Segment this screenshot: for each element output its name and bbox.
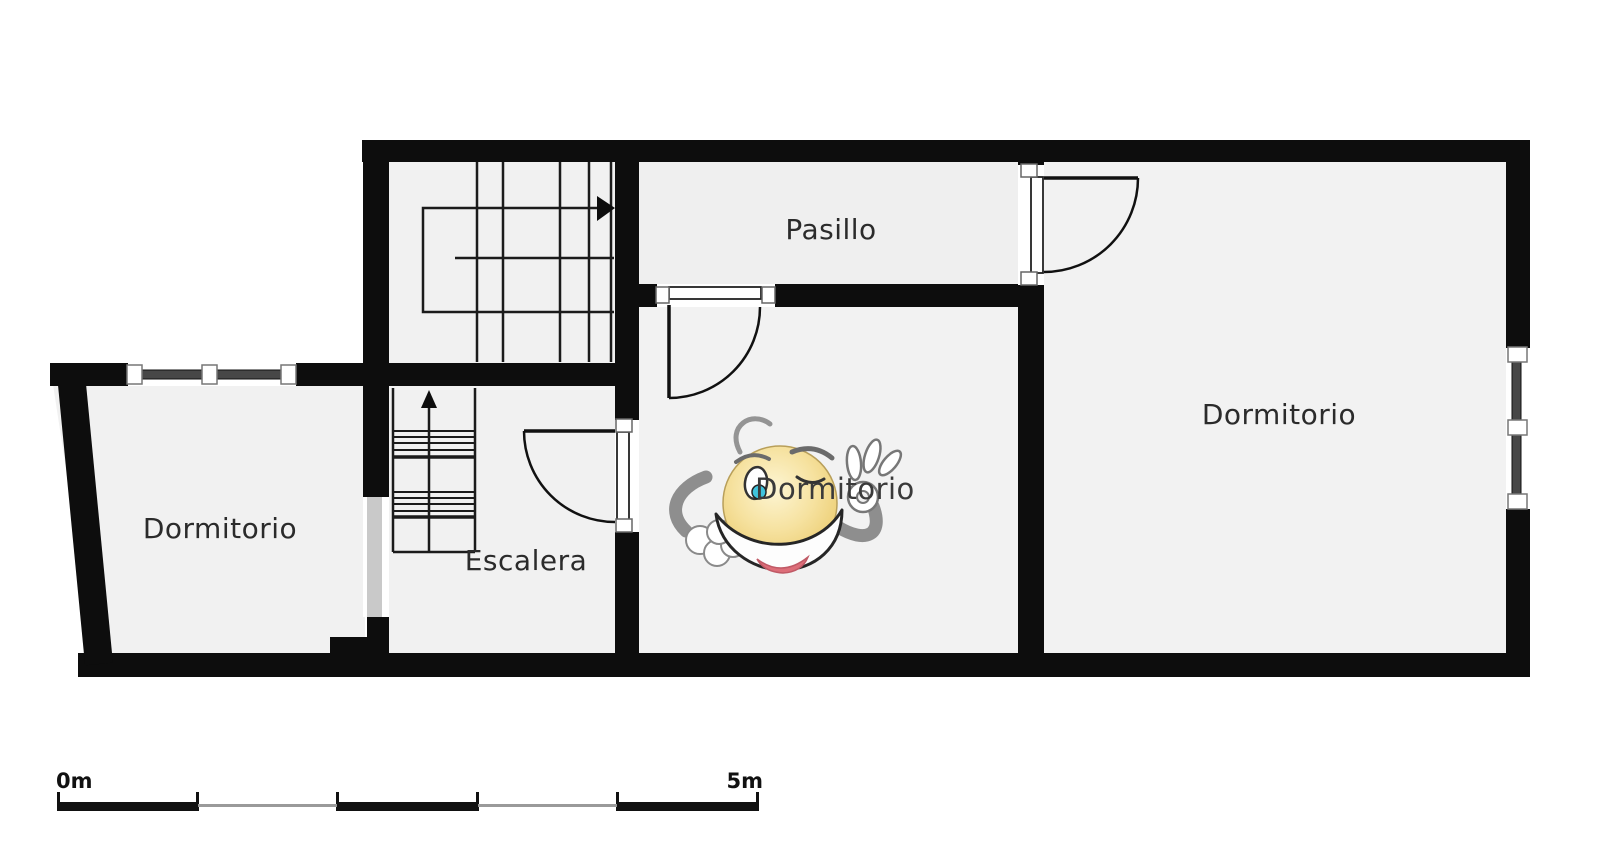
window-glass [141,370,204,379]
wall-mid-horizontal-left [50,363,128,386]
door-jamb [1021,164,1037,177]
window-jamb [1508,347,1527,362]
door-jamb [616,419,632,432]
scale-bar: 0m 5m [56,769,763,811]
wall-top [362,140,1530,162]
window-jamb [202,365,217,384]
room-label-dormitorio-right: Dormitorio [1202,398,1356,431]
door-frame-lines [617,432,629,520]
wall-mid-horizontal-right [296,363,639,386]
window-glass [1512,361,1521,422]
window-jamb [127,365,142,384]
passage-opening [363,497,389,617]
wall-right-divider-lower [1018,285,1044,655]
room-label-pasillo: Pasillo [785,213,876,246]
upper-stairwell-floor [385,160,618,365]
window-jamb [1508,494,1527,509]
room-label-escalera: Escalera [465,544,588,577]
scale-bar-segments [58,802,759,811]
door-jamb [616,519,632,532]
room-label-dormitorio-center: Dormitorio [755,472,915,506]
floor-plan: Pasillo Dormitorio Dormitorio Escalera D… [0,0,1600,862]
scale-label-start: 0m [56,769,93,793]
door-frame-lines [1031,177,1043,273]
wall-center-vertical-lower [615,532,639,655]
wall-left-vertical-upper [363,140,389,497]
floor-plan-page: Pasillo Dormitorio Dormitorio Escalera D… [0,0,1600,862]
passage-fill [367,497,382,617]
wall-hallway-bottom-stub [639,284,657,307]
scale-label-end: 5m [727,769,764,793]
wall-hallway-bottom [775,284,1018,307]
window-right-bedroom [1506,347,1530,509]
window-glass [1512,434,1521,495]
room-label-dormitorio-left: Dormitorio [143,512,297,545]
window-left-bedroom [127,363,296,386]
window-glass [216,370,283,379]
window-jamb [1508,420,1527,435]
wall-right-lower [1506,509,1530,677]
door-jamb [1021,272,1037,285]
door-jamb [656,287,669,303]
wall-right-divider-top [1018,140,1044,165]
door-frame-lines [669,287,761,299]
stair-room-floor [387,385,617,655]
wall-right-upper [1506,140,1530,348]
door-jamb [762,287,775,303]
wall-bottom [78,653,1530,677]
wall-step-foot [330,637,389,654]
window-jamb [281,365,296,384]
